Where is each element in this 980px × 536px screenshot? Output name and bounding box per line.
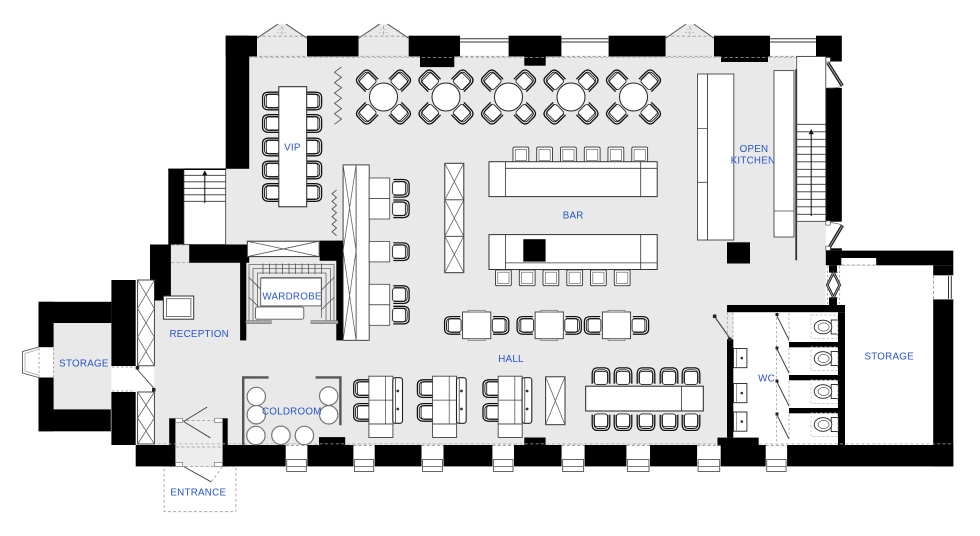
svg-text:STORAGE: STORAGE <box>864 352 914 363</box>
svg-text:BAR: BAR <box>563 210 584 221</box>
svg-text:COLDROOM: COLDROOM <box>262 407 322 418</box>
svg-text:RECEPTION: RECEPTION <box>169 329 228 340</box>
svg-text:WARDROBE: WARDROBE <box>262 292 322 303</box>
svg-text:HALL: HALL <box>498 354 524 365</box>
svg-text:OPEN: OPEN <box>740 144 769 155</box>
svg-text:STORAGE: STORAGE <box>59 358 109 369</box>
svg-text:VIP: VIP <box>284 143 301 154</box>
svg-text:KITCHEN: KITCHEN <box>731 156 776 167</box>
svg-text:WC: WC <box>758 374 775 385</box>
svg-text:ENTRANCE: ENTRANCE <box>170 488 226 499</box>
